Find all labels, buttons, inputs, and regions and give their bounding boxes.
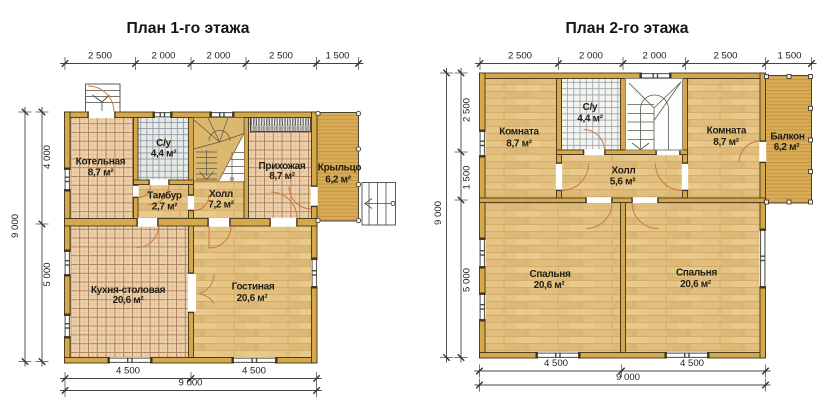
- svg-text:6,2 м²: 6,2 м²: [774, 142, 801, 153]
- svg-text:20,6 м²: 20,6 м²: [237, 293, 269, 304]
- svg-text:Комната: Комната: [499, 126, 539, 137]
- svg-text:5,6 м²: 5,6 м²: [610, 177, 637, 188]
- svg-text:Комната: Комната: [707, 126, 747, 137]
- svg-text:4 500: 4 500: [680, 358, 704, 369]
- svg-text:С/у: С/у: [583, 102, 598, 113]
- svg-text:2 500: 2 500: [713, 50, 737, 61]
- svg-text:4 500: 4 500: [242, 365, 266, 376]
- svg-text:8,7 м²: 8,7 м²: [713, 137, 740, 148]
- svg-text:1 500: 1 500: [462, 165, 473, 189]
- svg-text:4 500: 4 500: [544, 358, 568, 369]
- svg-text:2 500: 2 500: [269, 50, 293, 61]
- svg-text:Спальня: Спальня: [676, 268, 718, 279]
- svg-text:5 000: 5 000: [462, 268, 473, 292]
- svg-text:7,2 м²: 7,2 м²: [208, 199, 235, 210]
- svg-text:4,4 м²: 4,4 м²: [151, 149, 178, 160]
- svg-text:2 000: 2 000: [642, 50, 666, 61]
- svg-text:4 000: 4 000: [42, 145, 53, 169]
- svg-text:Крыльцо: Крыльцо: [318, 163, 362, 174]
- svg-text:4,4 м²: 4,4 м²: [577, 113, 604, 124]
- svg-text:2 500: 2 500: [508, 50, 532, 61]
- svg-text:20,6 м²: 20,6 м²: [534, 280, 566, 291]
- svg-text:9 000: 9 000: [178, 377, 202, 388]
- svg-text:План 2-го этажа: План 2-го этажа: [566, 20, 689, 37]
- svg-text:1 500: 1 500: [777, 50, 801, 61]
- svg-text:Спальня: Спальня: [529, 269, 571, 280]
- svg-text:2 000: 2 000: [206, 50, 230, 61]
- svg-text:5 000: 5 000: [42, 262, 53, 286]
- svg-text:9 000: 9 000: [433, 201, 444, 225]
- svg-text:2 500: 2 500: [462, 98, 473, 122]
- svg-text:Котельная: Котельная: [76, 157, 126, 168]
- svg-text:8,7 м²: 8,7 м²: [88, 168, 115, 179]
- svg-text:2 000: 2 000: [151, 50, 175, 61]
- svg-text:2,7 м²: 2,7 м²: [152, 201, 179, 212]
- svg-text:6,2 м²: 6,2 м²: [325, 175, 352, 186]
- svg-text:1 500: 1 500: [325, 50, 349, 61]
- svg-text:Холл: Холл: [612, 166, 636, 177]
- svg-text:Холл: Холл: [209, 189, 233, 200]
- svg-text:9 000: 9 000: [616, 372, 640, 383]
- svg-text:Балкон: Балкон: [770, 132, 805, 143]
- svg-text:9 000: 9 000: [10, 214, 21, 238]
- svg-text:2 000: 2 000: [579, 50, 603, 61]
- svg-text:С/у: С/у: [156, 138, 171, 149]
- svg-text:2 500: 2 500: [88, 50, 112, 61]
- svg-text:8,7 м²: 8,7 м²: [506, 138, 533, 149]
- svg-text:Тамбур: Тамбур: [147, 190, 182, 202]
- svg-text:20,6 м²: 20,6 м²: [680, 279, 712, 290]
- svg-text:Гостиная: Гостиная: [232, 282, 275, 293]
- svg-text:20,6 м²: 20,6 м²: [113, 295, 145, 306]
- svg-text:4 500: 4 500: [116, 365, 140, 376]
- svg-text:План 1-го этажа: План 1-го этажа: [127, 20, 250, 37]
- svg-text:8,7 м²: 8,7 м²: [269, 171, 296, 182]
